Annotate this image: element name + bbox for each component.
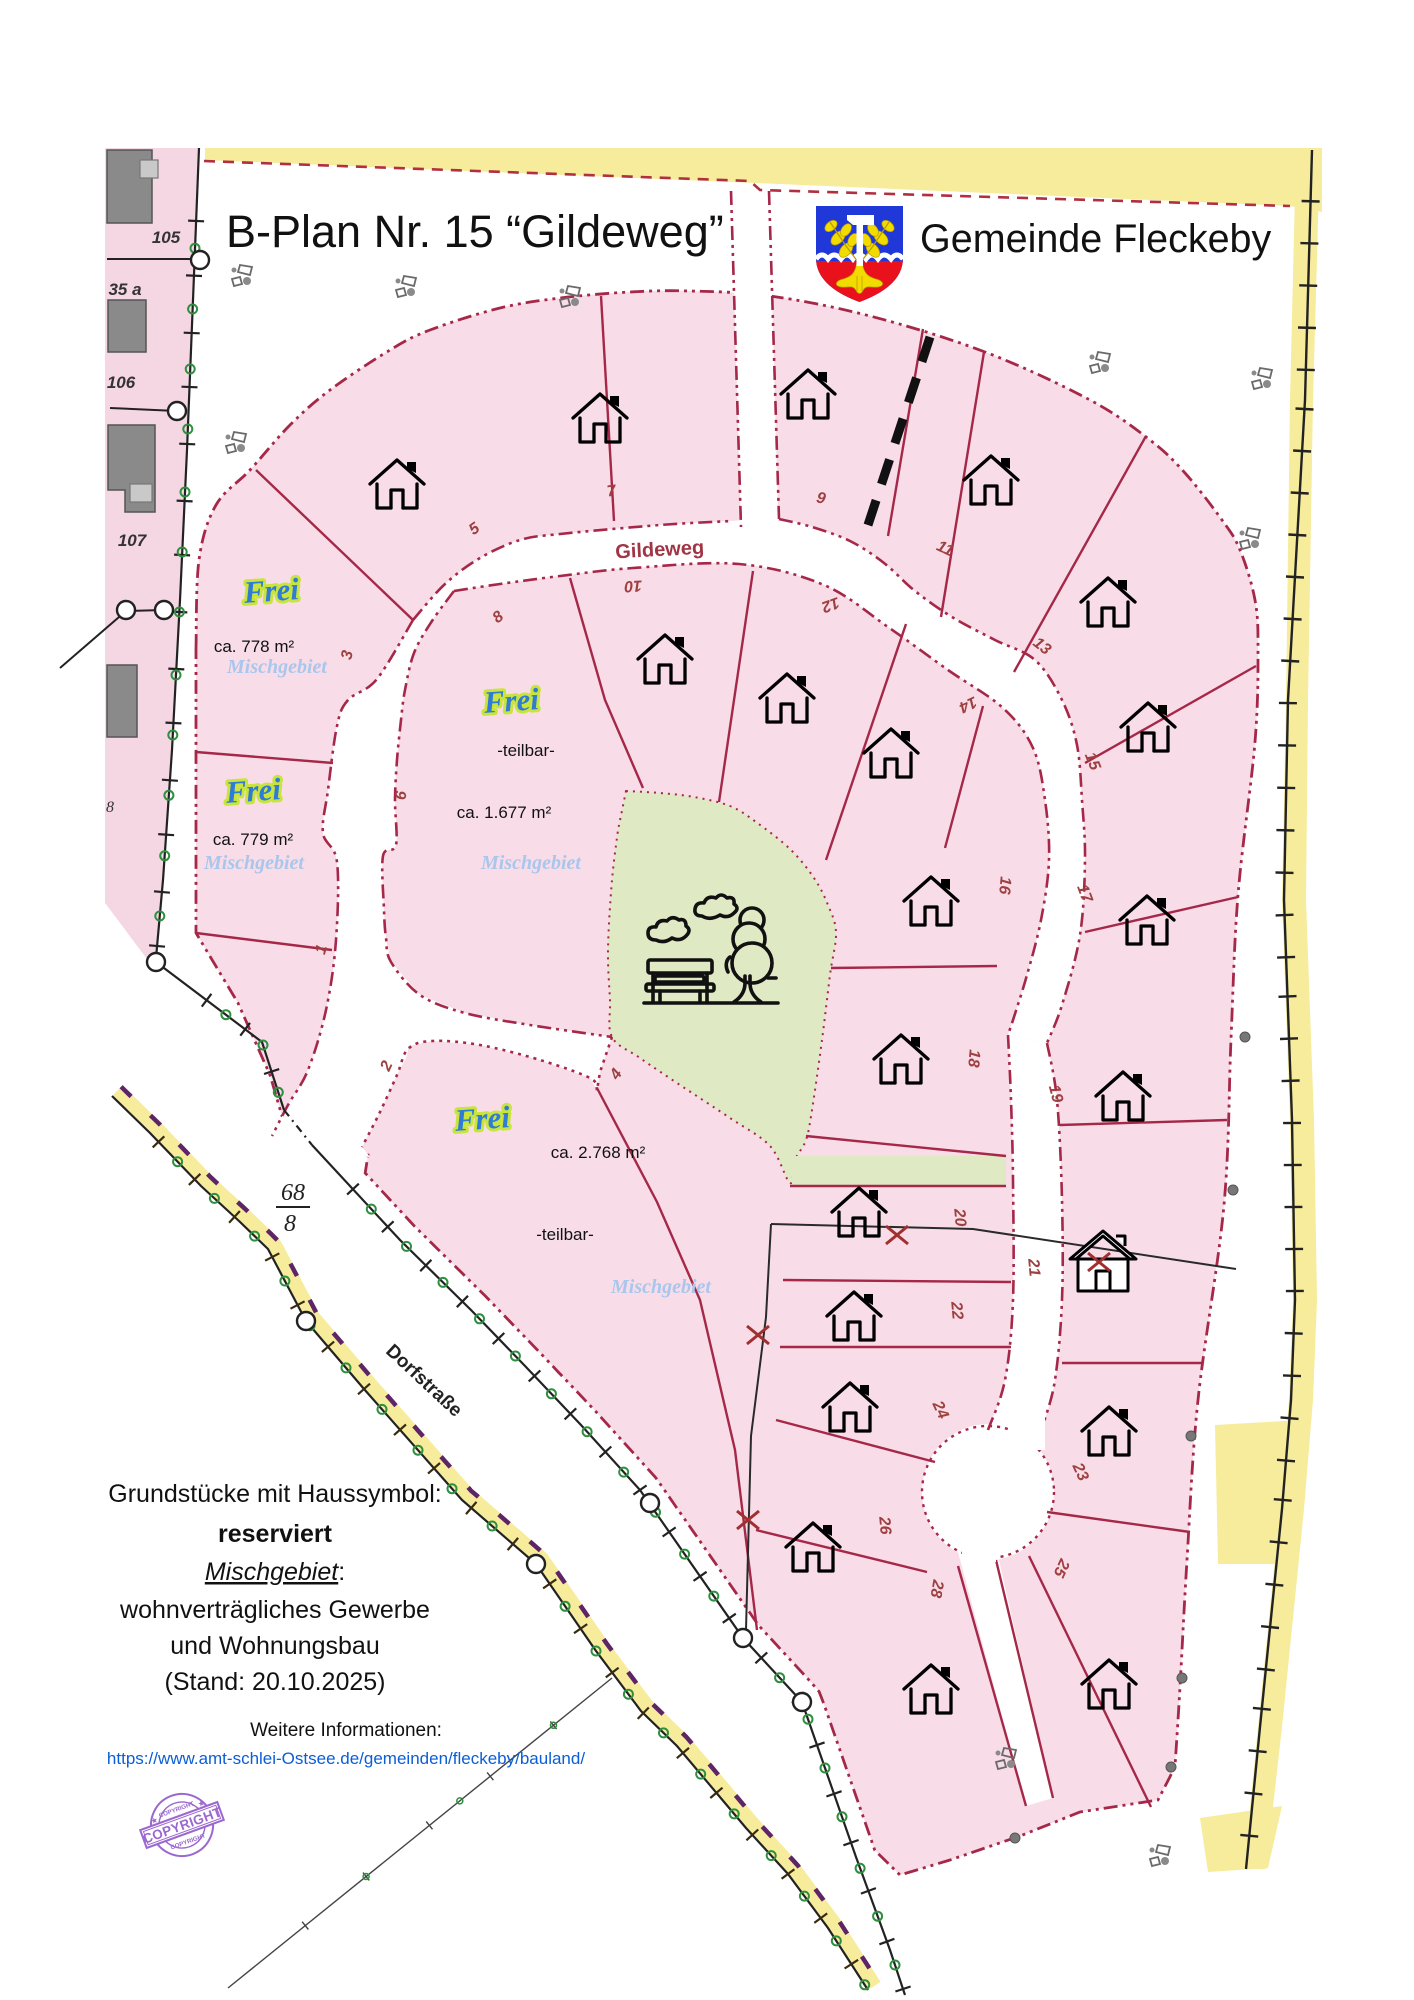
svg-text:Mischgebiet: Mischgebiet [480, 852, 582, 874]
svg-text:35 a: 35 a [108, 280, 141, 299]
svg-text:107: 107 [118, 531, 148, 550]
svg-text:Frei: Frei [242, 571, 301, 610]
svg-text:ca. 778 m²: ca. 778 m² [214, 637, 295, 656]
svg-text:https://www.amt-schlei-Ostsee.: https://www.amt-schlei-Ostsee.de/gemeind… [107, 1749, 585, 1768]
svg-text:105: 105 [152, 228, 181, 247]
svg-text:8: 8 [284, 1211, 296, 1237]
svg-text:wohnverträgliches Gewerbe: wohnverträgliches Gewerbe [119, 1596, 430, 1624]
svg-text:20: 20 [950, 1207, 969, 1227]
svg-text:16: 16 [995, 876, 1013, 895]
svg-text:Weitere Informationen:: Weitere Informationen: [250, 1720, 442, 1741]
svg-text:68: 68 [281, 1180, 305, 1206]
svg-text:26: 26 [875, 1515, 894, 1535]
svg-text:Frei: Frei [224, 771, 283, 810]
svg-text:28: 28 [926, 1578, 946, 1600]
svg-text:Frei: Frei [453, 1099, 512, 1138]
svg-text:22: 22 [947, 1300, 966, 1320]
svg-text:Mischgebiet: Mischgebiet [203, 852, 305, 874]
svg-text:Grundstücke mit Haussymbol:: Grundstücke mit Haussymbol: [108, 1480, 441, 1508]
svg-text:Mischgebiet: Mischgebiet [226, 656, 328, 678]
svg-text:ca. 779 m²: ca. 779 m² [213, 830, 294, 849]
svg-text:ca. 1.677 m²: ca. 1.677 m² [457, 803, 552, 822]
svg-text:Frei: Frei [482, 681, 541, 720]
svg-text:6: 6 [393, 790, 411, 800]
svg-text:B-Plan Nr. 15 “Gildeweg”: B-Plan Nr. 15 “Gildeweg” [226, 206, 724, 257]
svg-text:-teilbar-: -teilbar- [497, 741, 555, 760]
svg-text:Gemeinde Fleckeby: Gemeinde Fleckeby [920, 217, 1272, 261]
svg-text:10: 10 [624, 577, 643, 595]
svg-text:ca. 2.768 m²: ca. 2.768 m² [551, 1143, 646, 1162]
svg-text:Gildeweg: Gildeweg [615, 537, 705, 564]
svg-text:106: 106 [107, 373, 136, 392]
svg-text:und Wohnungsbau: und Wohnungsbau [170, 1632, 379, 1660]
svg-text:(Stand: 20.10.2025): (Stand: 20.10.2025) [165, 1668, 386, 1696]
svg-text:8: 8 [106, 799, 114, 816]
svg-text:-teilbar-: -teilbar- [536, 1225, 594, 1244]
svg-text:18: 18 [964, 1049, 982, 1068]
svg-text:Mischgebiet: Mischgebiet [610, 1276, 712, 1298]
svg-text:reserviert: reserviert [218, 1520, 333, 1548]
svg-text:Mischgebiet:: Mischgebiet: [205, 1558, 345, 1586]
svg-text:21: 21 [1024, 1257, 1043, 1277]
